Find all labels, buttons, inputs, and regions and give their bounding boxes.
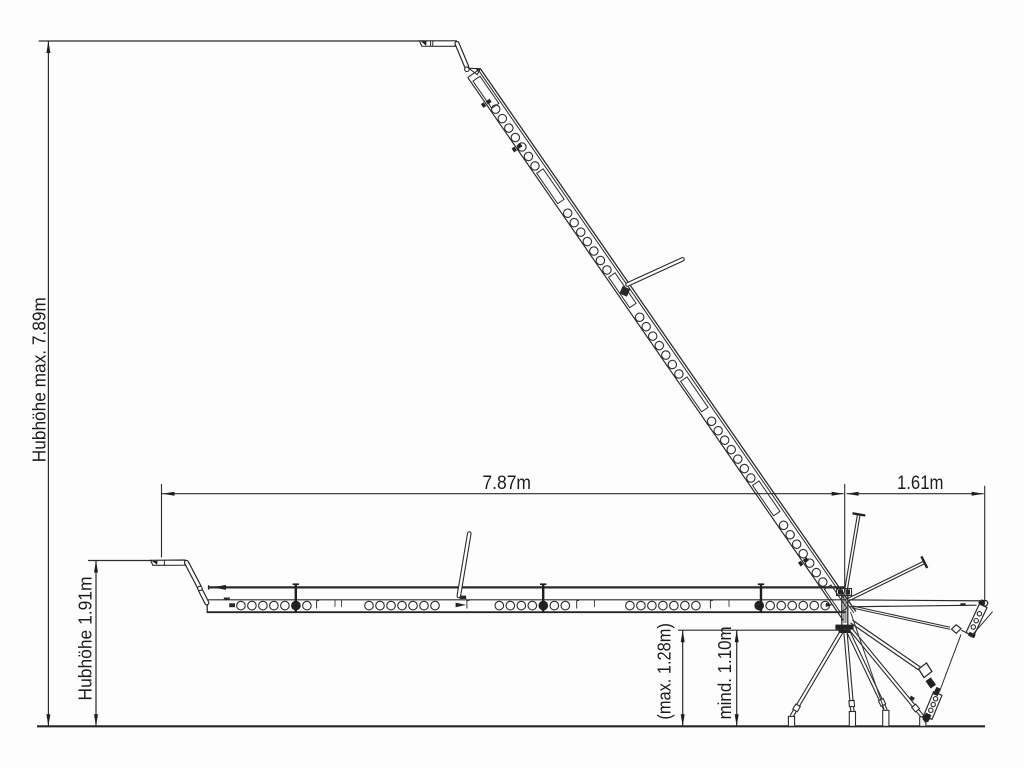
svg-text:Hubhöhe 1.91m: Hubhöhe 1.91m (75, 577, 96, 701)
svg-text:7.87m: 7.87m (482, 472, 531, 494)
svg-text:mind. 1.10m: mind. 1.10m (714, 626, 735, 719)
svg-text:(max. 1.28m): (max. 1.28m) (654, 623, 675, 719)
svg-text:Hubhöhe max. 7.89m: Hubhöhe max. 7.89m (29, 297, 50, 462)
svg-text:1.61m: 1.61m (897, 472, 944, 494)
